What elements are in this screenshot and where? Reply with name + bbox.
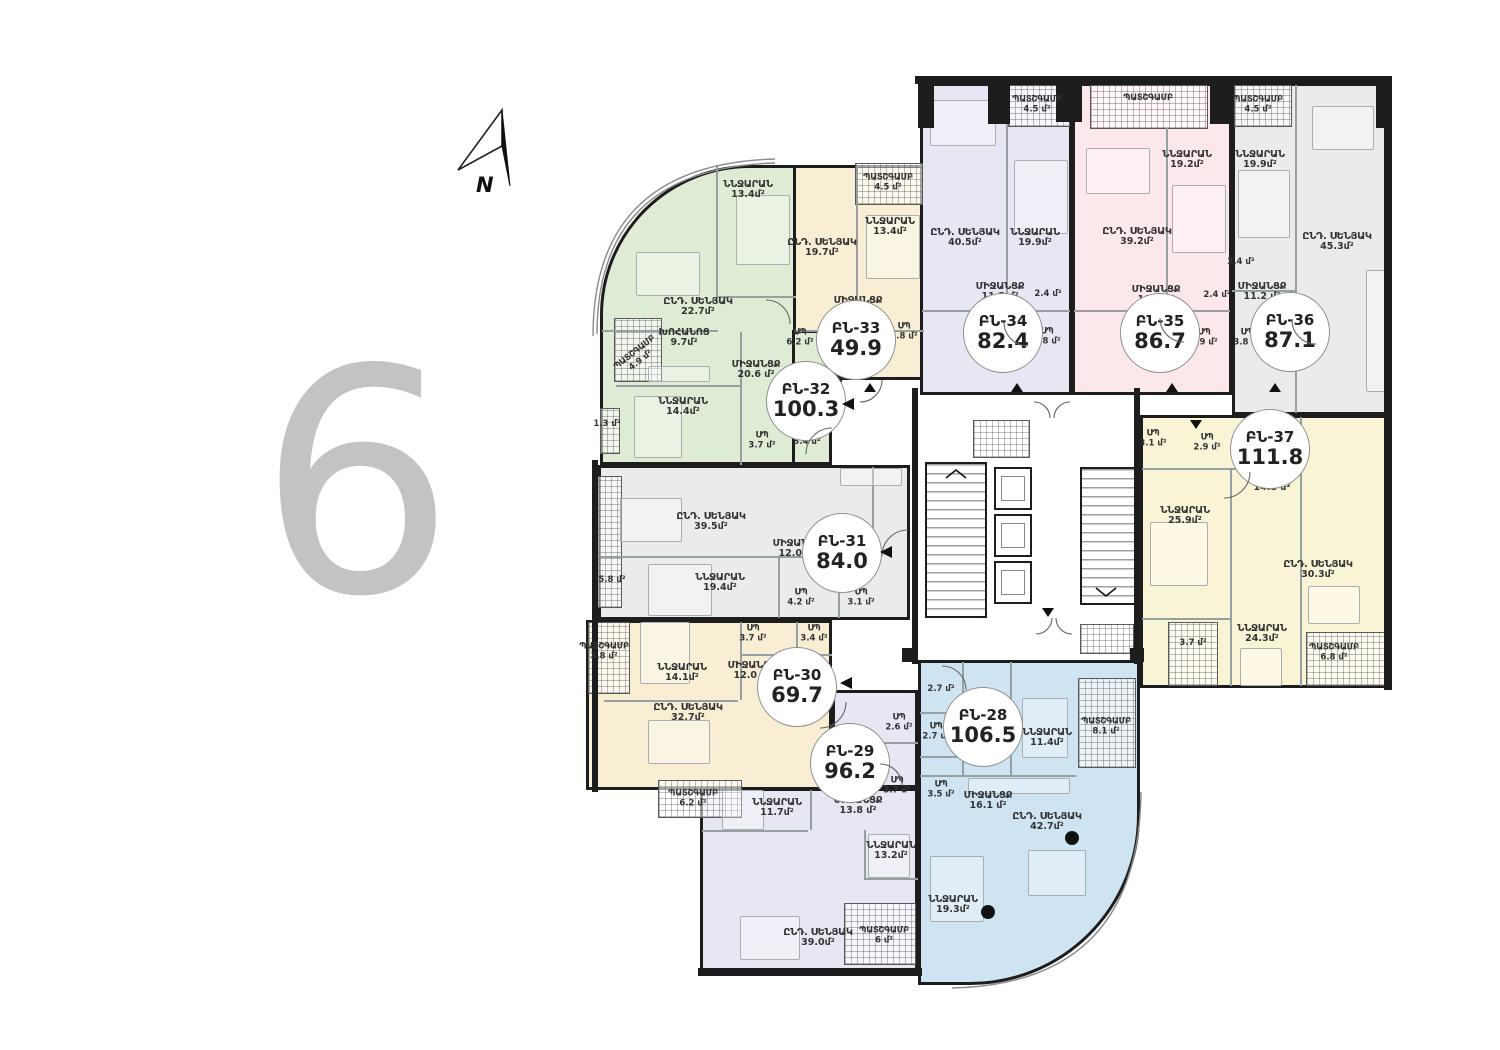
room-label-bn35-living: ԸՆԴ. ՍԵՆՅԱԿ39.2մ² bbox=[1102, 226, 1172, 248]
table-outline bbox=[930, 100, 996, 146]
lobby-hatch-top bbox=[973, 420, 1030, 458]
table-outline bbox=[1308, 586, 1360, 624]
partition-line bbox=[716, 165, 718, 298]
partition-line bbox=[810, 790, 812, 830]
bed-outline bbox=[1172, 185, 1226, 253]
floor-plan-canvas: 6 N bbox=[0, 0, 1500, 1050]
apartment-badge-bn30[interactable]: ԲՆ-3069.7 bbox=[757, 647, 837, 727]
partition-line bbox=[920, 775, 1076, 777]
wall-pillar bbox=[988, 76, 1010, 124]
balcony-bn37-37 bbox=[1168, 622, 1218, 686]
kitchen-counter-outline bbox=[648, 366, 710, 382]
room-label-bn28-aux: 2.7 մ² bbox=[927, 685, 954, 695]
room-label-bn30-balcony: ՊԱՏՇԳԱՄԲ3.8 մ² bbox=[579, 642, 629, 661]
room-label-bn32-bedroom1: ՆՆՋԱՐԱՆ13.4մ² bbox=[723, 179, 772, 201]
room-label-bn28-living: ԸՆԴ. ՍԵՆՅԱԿ42.7մ² bbox=[1012, 811, 1082, 833]
room-label-bn37-living: ԸՆԴ. ՍԵՆՅԱԿ30.3մ² bbox=[1283, 559, 1353, 581]
room-label-bn37-balcony: ՊԱՏՇԳԱՄԲ6.8 մ² bbox=[1309, 643, 1359, 662]
north-arrow-icon: N bbox=[452, 106, 526, 196]
table-outline bbox=[1028, 850, 1086, 896]
room-label-bn33-balcony: ՊԱՏՇԳԱՄԲ4.5 մ² bbox=[863, 173, 913, 192]
apartment-badge-bn28[interactable]: ԲՆ-28106.5 bbox=[943, 687, 1023, 767]
wall-pillar bbox=[1210, 76, 1234, 124]
room-label-bn29-bedroom1: ՆՆՋԱՐԱՆ11.7մ² bbox=[752, 797, 801, 819]
table-outline bbox=[648, 720, 710, 764]
room-label-bn29-living: ԸՆԴ. ՍԵՆՅԱԿ39.0մ² bbox=[783, 927, 853, 949]
wall-pillar bbox=[1376, 76, 1392, 128]
room-label-bn37-bedroom2: ՆՆՋԱՐԱՆ24.3մ² bbox=[1237, 623, 1286, 645]
partition-line bbox=[702, 830, 808, 832]
stairs-left bbox=[925, 462, 987, 618]
compass-n-label: N bbox=[476, 173, 494, 196]
room-label-bn36-balcony: ՊԱՏՇԳԱՄԲ4.5 մ² bbox=[1233, 95, 1283, 114]
room-label-bn31-living: ԸՆԴ. ՍԵՆՅԱԿ39.5մ² bbox=[676, 511, 746, 533]
wall-pillar bbox=[918, 76, 934, 128]
partition-line bbox=[616, 385, 740, 387]
table-outline bbox=[636, 252, 700, 296]
room-label-bn30-bath2: ՍՊ3.4 մ² bbox=[800, 624, 827, 643]
room-label-bn37-bedroom1: ՆՆՋԱՐԱՆ25.9մ² bbox=[1160, 505, 1209, 527]
room-label-bn36-living: ԸՆԴ. ՍԵՆՅԱԿ45.3մ² bbox=[1302, 231, 1372, 253]
balcony-bn32-13 bbox=[600, 408, 620, 454]
room-label-bn29-bath1: ՍՊ2.6 մ² bbox=[885, 713, 912, 732]
room-label-bn36-aux: 2.4 մ² bbox=[1227, 258, 1254, 268]
room-label-bn37-bath2: ՍՊ2.9 մ² bbox=[1193, 433, 1220, 452]
wall-segment bbox=[1384, 412, 1392, 690]
room-label-bn28-balcony: ՊԱՏՇԳԱՄԲ8.1 մ² bbox=[1081, 717, 1131, 736]
room-label-bn30-living: ԸՆԴ. ՍԵՆՅԱԿ32.7մ² bbox=[653, 702, 723, 724]
partition-line bbox=[1230, 468, 1232, 686]
room-label-bn28-bedroom2: ՆՆՋԱՐԱՆ19.3մ² bbox=[928, 894, 977, 916]
room-label-bn37-bath1: ՍՊ3.1 մ² bbox=[1139, 429, 1166, 448]
elevator-3 bbox=[994, 561, 1032, 604]
room-label-bn35-aux: 2.4 մ² bbox=[1203, 291, 1230, 301]
room-label-bn31-bedroom: ՆՆՋԱՐԱՆ19.4մ² bbox=[695, 572, 744, 594]
apartment-badge-bn31[interactable]: ԲՆ-3184.0 bbox=[802, 513, 882, 593]
apartment-badge-bn37[interactable]: ԲՆ-37111.8 bbox=[1230, 409, 1310, 489]
bed-outline bbox=[1240, 648, 1282, 686]
wall-segment bbox=[912, 388, 918, 664]
apartment-badge-bn29[interactable]: ԲՆ-2996.2 bbox=[810, 723, 890, 803]
room-label-bn34-living: ԸՆԴ. ՍԵՆՅԱԿ40.5մ² bbox=[930, 227, 1000, 249]
kitchen-counter-outline bbox=[840, 468, 902, 486]
floor-number: 6 bbox=[258, 358, 455, 612]
partition-line bbox=[864, 878, 918, 880]
apartment-badge-bn34[interactable]: ԲՆ-3482.4 bbox=[963, 293, 1043, 373]
room-label-bn35-balcony: ՊԱՏՇԳԱՄԲ bbox=[1123, 94, 1173, 104]
room-label-bn29-bedroom2: ՆՆՋԱՐԱՆ13.2մ² bbox=[866, 840, 915, 862]
room-label-bn37-aux: 3.7 մ² bbox=[1179, 639, 1206, 649]
elevator-1 bbox=[994, 467, 1032, 510]
table-outline bbox=[620, 498, 682, 542]
room-label-bn29-bath2: ՍՊ3.7 մ² bbox=[883, 776, 910, 795]
room-label-bn31-balcony: 5.8 մ² bbox=[598, 576, 625, 586]
wall-segment bbox=[698, 968, 922, 976]
room-label-bn35-bedroom: ՆՆՋԱՐԱՆ19.2մ² bbox=[1162, 149, 1211, 171]
room-label-bn30-bedroom: ՆՆՋԱՐԱՆ14.1մ² bbox=[657, 662, 706, 684]
room-label-bn31-bath1: ՍՊ4.2 մ² bbox=[787, 588, 814, 607]
wall-segment bbox=[592, 460, 598, 792]
wall-segment bbox=[915, 76, 1392, 84]
room-label-bn32-bedroom2: ՆՆՋԱՐԱՆ14.4մ² bbox=[658, 396, 707, 418]
room-label-bn30-bath1: ՍՊ3.7 մ² bbox=[739, 624, 766, 643]
room-label-bn36-bedroom: ՆՆՋԱՐԱՆ19.9մ² bbox=[1235, 149, 1284, 171]
room-label-bn28-hall: ՄԻՋԱՆՑՔ16.1 մ² bbox=[964, 790, 1013, 812]
room-label-bn32-aux2: 1.3 մ² bbox=[593, 420, 620, 430]
room-label-bn32-living: ԸՆԴ. ՍԵՆՅԱԿ22.7մ² bbox=[663, 296, 733, 318]
room-label-bn32-bath2: ՍՊ3.7 մ² bbox=[748, 431, 775, 450]
partition-line bbox=[1142, 618, 1230, 620]
room-label-bn32-bath1: ՍՊ6.2 մ² bbox=[786, 328, 813, 347]
room-label-bn29-balcony2: ՊԱՏՇԳԱՄԲ6 մ² bbox=[859, 926, 909, 945]
wall-pillar bbox=[902, 648, 918, 662]
room-label-bn29-balcony1: ՊԱՏՇԳԱՄԲ6.2 մ² bbox=[668, 789, 718, 808]
room-label-bn34-bedroom: ՆՆՋԱՐԱՆ19.9մ² bbox=[1010, 227, 1059, 249]
bed-outline bbox=[1238, 170, 1290, 238]
room-label-bn33-bedroom: ՆՆՋԱՐԱՆ13.4մ² bbox=[865, 216, 914, 238]
apartment-badge-bn36[interactable]: ԲՆ-3687.1 bbox=[1250, 292, 1330, 372]
bed-outline bbox=[1150, 522, 1208, 586]
lobby-hatch-bottom bbox=[1080, 624, 1134, 654]
room-label-bn34-balcony: ՊԱՏՇԳԱՄԲ4.5 մ² bbox=[1012, 95, 1062, 114]
bed-outline bbox=[736, 195, 790, 265]
bed-outline bbox=[1014, 160, 1068, 234]
elevator-2 bbox=[994, 514, 1032, 557]
room-label-bn32-kitchen: ԽՈՀԱՆՈՑ9.7մ² bbox=[659, 327, 710, 349]
kitchen-counter-outline bbox=[1366, 270, 1386, 392]
balcony-bn35 bbox=[1090, 85, 1208, 129]
partition-line bbox=[740, 332, 742, 465]
stairs-right bbox=[1080, 467, 1136, 605]
apartment-badge-bn35[interactable]: ԲՆ-3586.7 bbox=[1120, 293, 1200, 373]
wall-pillar bbox=[1130, 648, 1144, 662]
room-label-bn34-aux: 2.4 մ² bbox=[1034, 290, 1061, 300]
table-outline bbox=[1312, 106, 1374, 150]
partition-line bbox=[778, 558, 780, 618]
apartment-badge-bn33[interactable]: ԲՆ-3349.9 bbox=[816, 300, 896, 380]
wall-segment bbox=[1384, 80, 1392, 415]
room-label-bn33-living: ԸՆԴ. ՍԵՆՅԱԿ19.7մ² bbox=[787, 237, 857, 259]
table-outline bbox=[1086, 148, 1150, 194]
room-label-bn28-bath2: ՍՊ3.5 մ² bbox=[927, 780, 954, 799]
room-label-bn28-bedroom1: ՆՆՋԱՐԱՆ11.4մ² bbox=[1022, 727, 1071, 749]
